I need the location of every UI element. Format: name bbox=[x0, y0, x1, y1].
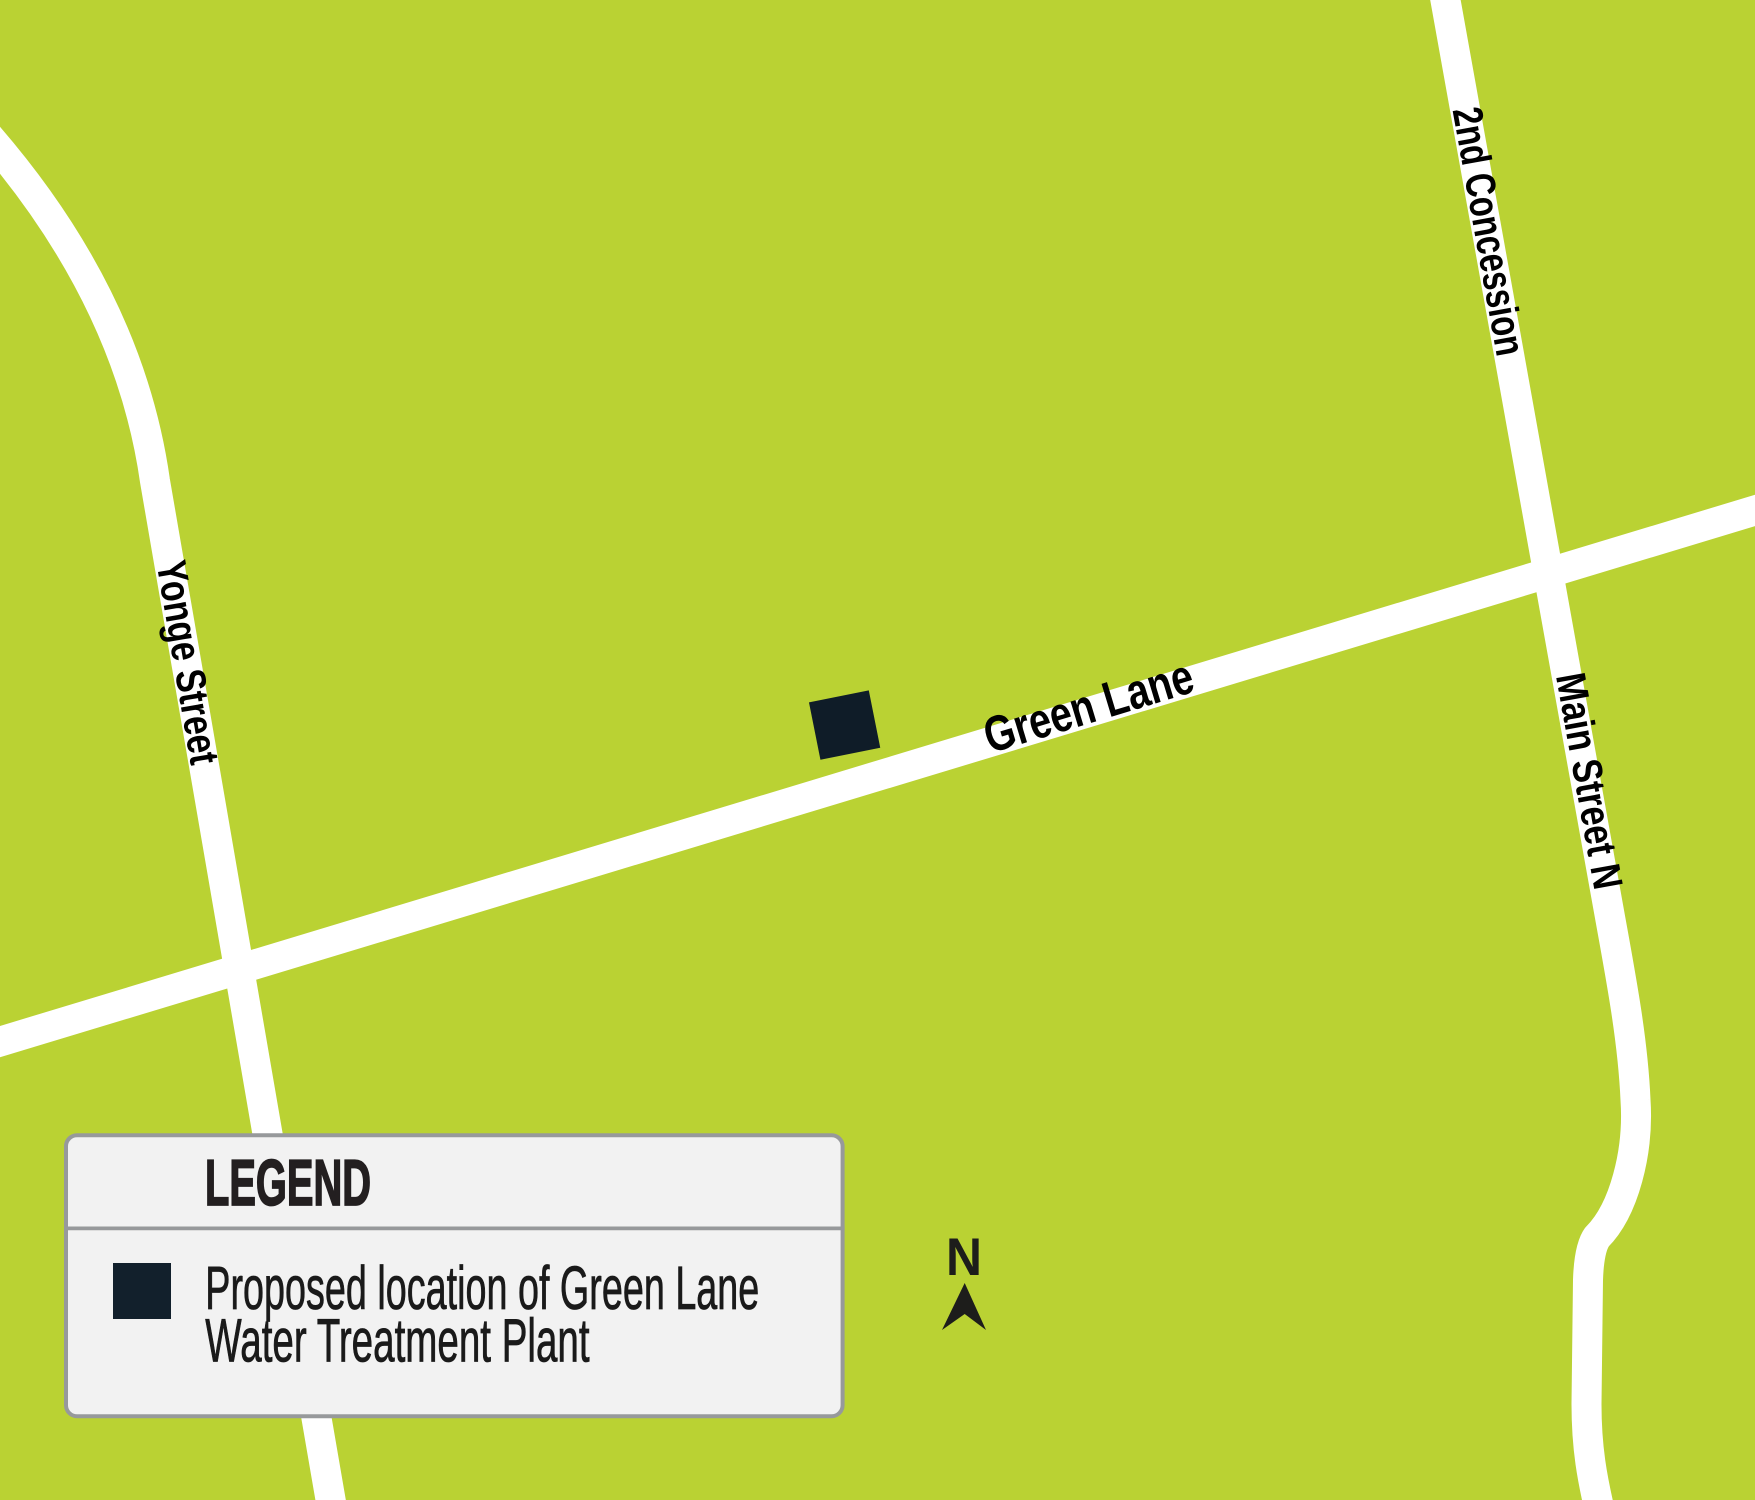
svg-text:LEGEND: LEGEND bbox=[205, 1147, 371, 1219]
svg-text:Water Treatment Plant: Water Treatment Plant bbox=[205, 1306, 589, 1374]
svg-text:N: N bbox=[946, 1228, 982, 1287]
